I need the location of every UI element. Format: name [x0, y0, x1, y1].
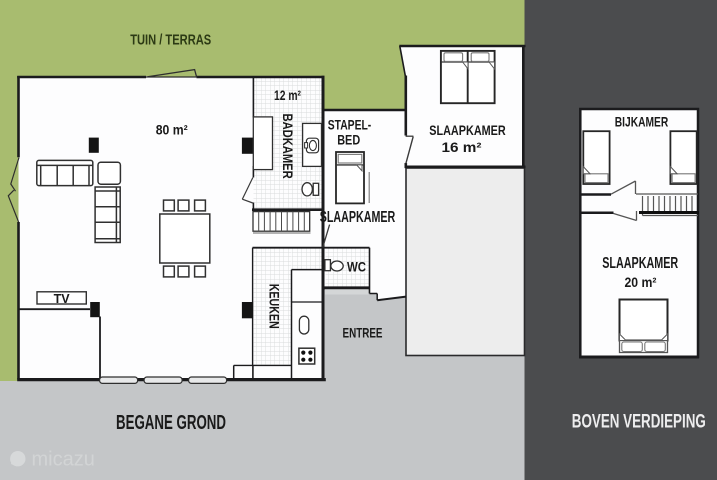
svg-text:TUIN / TERRAS: TUIN / TERRAS [130, 33, 211, 49]
svg-text:BOVEN VERDIEPING: BOVEN VERDIEPING [572, 412, 706, 433]
svg-text:12 m²: 12 m² [274, 88, 301, 103]
svg-text:80 m²: 80 m² [156, 122, 188, 138]
svg-text:20 m²: 20 m² [625, 274, 657, 290]
svg-text:BIJKAMER: BIJKAMER [615, 114, 669, 130]
svg-text:SLAAPKAMER: SLAAPKAMER [429, 123, 506, 138]
svg-text:SLAAPKAMER: SLAAPKAMER [602, 255, 678, 272]
svg-text:STAPEL-: STAPEL- [328, 117, 372, 133]
svg-text:SLAAPKAMER: SLAAPKAMER [320, 209, 396, 226]
svg-text:BADKAMER: BADKAMER [280, 114, 296, 179]
svg-text:16 m²: 16 m² [442, 140, 483, 155]
svg-text:BEGANE GROND: BEGANE GROND [116, 412, 226, 434]
svg-text:WC: WC [347, 259, 366, 275]
svg-text:micazu: micazu [32, 449, 95, 471]
svg-text:TV: TV [54, 292, 71, 306]
svg-text:BED: BED [337, 132, 360, 148]
svg-text:KEUKEN: KEUKEN [267, 284, 283, 329]
svg-text:ENTREE: ENTREE [343, 325, 383, 341]
